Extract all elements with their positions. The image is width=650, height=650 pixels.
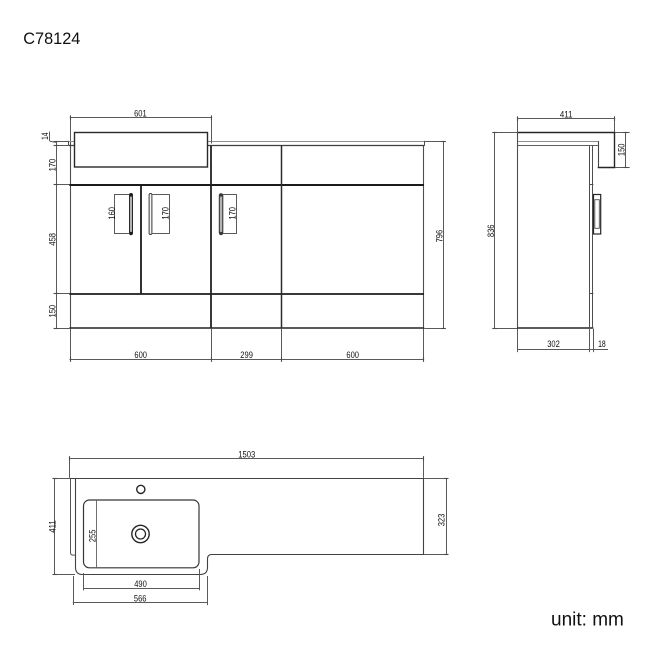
svg-text:796: 796 — [434, 230, 445, 243]
svg-text:255: 255 — [87, 530, 98, 543]
svg-text:600: 600 — [346, 350, 359, 361]
svg-text:14: 14 — [40, 132, 51, 140]
svg-text:458: 458 — [47, 233, 58, 246]
svg-text:1503: 1503 — [238, 449, 255, 460]
svg-text:150: 150 — [616, 144, 627, 157]
svg-text:170: 170 — [160, 207, 171, 220]
svg-text:170: 170 — [228, 207, 239, 220]
svg-text:150: 150 — [47, 305, 58, 318]
svg-text:160: 160 — [107, 207, 118, 220]
svg-text:170: 170 — [47, 159, 58, 172]
svg-text:299: 299 — [240, 350, 253, 361]
svg-text:566: 566 — [134, 594, 147, 605]
svg-text:836: 836 — [486, 225, 497, 238]
svg-text:C78124: C78124 — [23, 30, 80, 48]
svg-text:323: 323 — [437, 514, 448, 527]
svg-text:302: 302 — [547, 339, 560, 350]
svg-text:411: 411 — [48, 520, 59, 533]
svg-text:unit: mm: unit: mm — [551, 609, 624, 630]
svg-text:490: 490 — [134, 579, 147, 590]
svg-text:18: 18 — [598, 339, 606, 350]
svg-text:411: 411 — [560, 110, 573, 121]
svg-text:600: 600 — [134, 350, 147, 361]
svg-text:601: 601 — [134, 109, 147, 120]
